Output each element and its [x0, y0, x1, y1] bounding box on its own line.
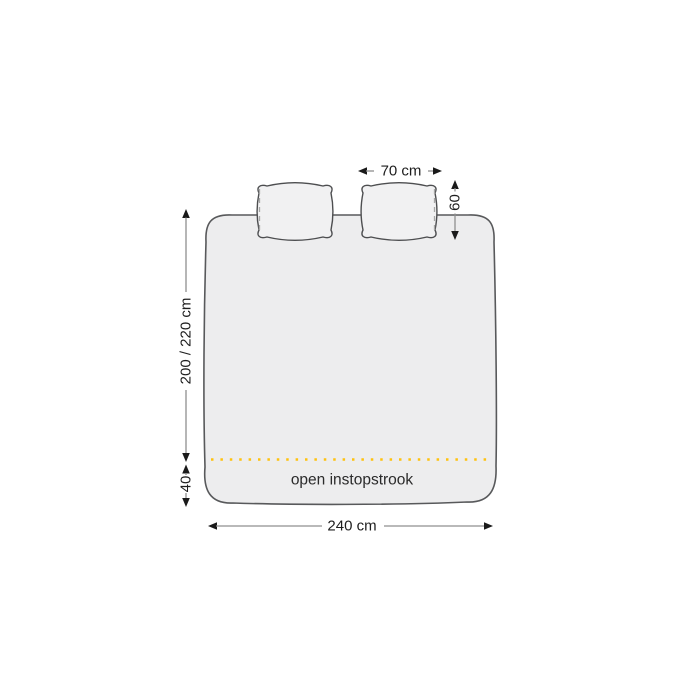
pillow-height-label: 60 — [447, 194, 464, 211]
tuck-strip-label: open instopstrook — [291, 472, 414, 489]
pillow-left — [257, 183, 333, 241]
bedding-dimension-diagram: open instopstrook 70 cm 60 — [0, 0, 700, 700]
arrow-right-icon — [433, 167, 442, 175]
dimension-duvet-length: 200 / 220 cm — [178, 209, 195, 462]
pillow-width-label: 70 cm — [381, 163, 422, 180]
pillow-right — [361, 183, 437, 241]
arrow-left-icon — [358, 167, 367, 175]
arrow-down-icon — [182, 453, 190, 462]
arrow-left-icon — [208, 522, 217, 530]
arrow-up-icon — [451, 180, 459, 189]
arrow-down-icon — [182, 498, 190, 507]
diagram-canvas: open instopstrook 70 cm 60 — [0, 0, 700, 700]
arrow-right-icon — [484, 522, 493, 530]
dimension-duvet-width: 240 cm — [208, 518, 493, 535]
duvet-length-label: 200 / 220 cm — [178, 298, 195, 385]
arrow-up-icon — [182, 465, 190, 474]
dimension-pillow-width: 70 cm — [358, 163, 442, 180]
dimension-tuck-strip-depth: 40 — [178, 465, 195, 508]
duvet-body — [204, 215, 496, 504]
pillow-right-outline — [361, 183, 437, 241]
arrow-up-icon — [182, 209, 190, 218]
pillow-left-outline — [257, 183, 333, 241]
tuck-strip-depth-label: 40 — [178, 476, 195, 493]
duvet-width-label: 240 cm — [327, 518, 376, 535]
